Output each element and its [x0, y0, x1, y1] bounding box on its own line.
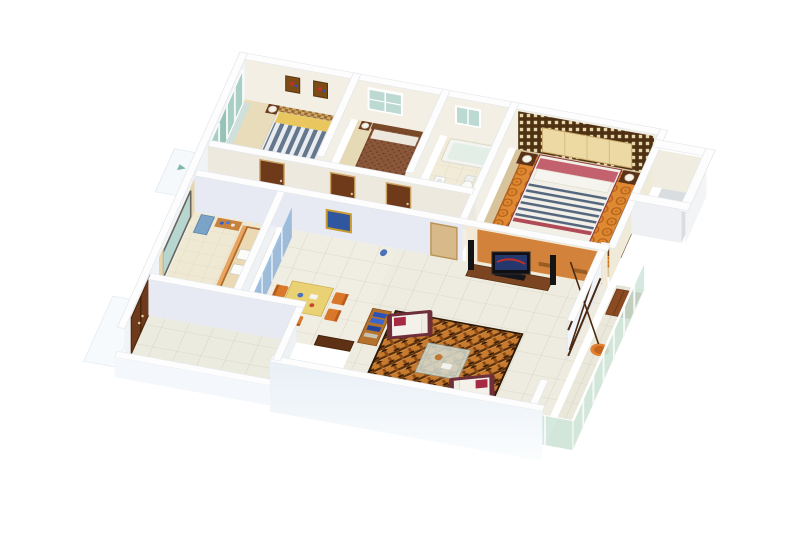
door: [431, 223, 457, 260]
dining-wall-art: [327, 210, 351, 232]
sofa: [387, 310, 433, 340]
door-handle: [141, 315, 144, 318]
speaker: [468, 240, 474, 270]
speaker: [550, 255, 556, 285]
tv: [492, 252, 530, 274]
door-handle: [138, 322, 141, 325]
floorplan-render: [0, 0, 800, 550]
